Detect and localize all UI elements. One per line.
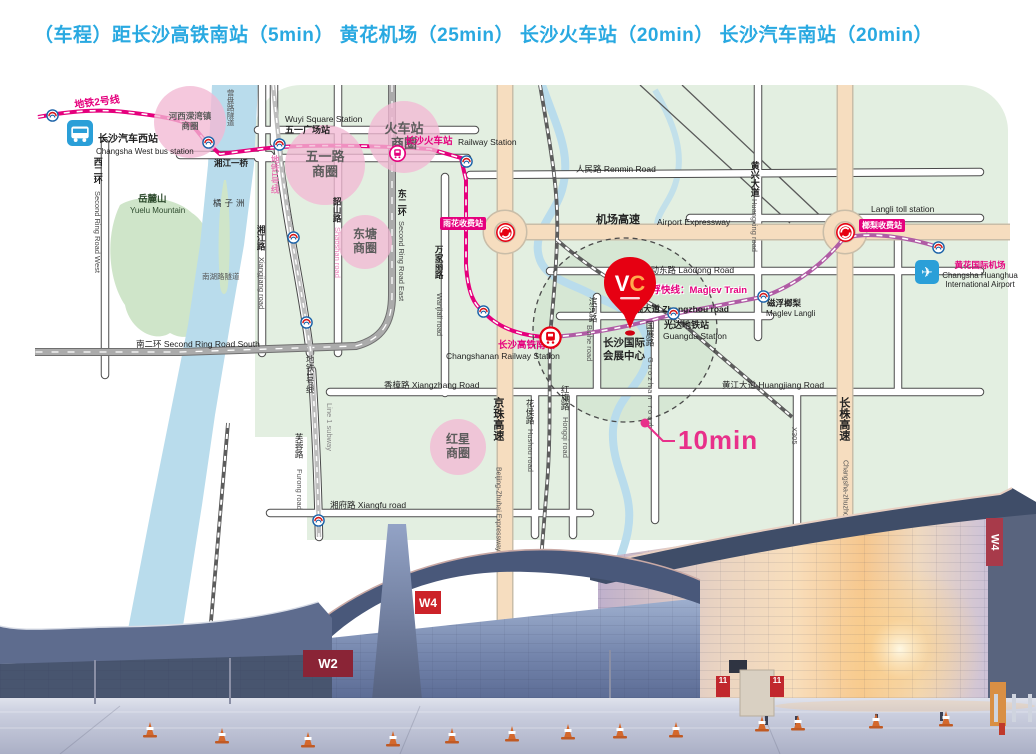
map-label: 会展中心 bbox=[603, 351, 645, 362]
map-label: 五一广场站 bbox=[285, 126, 330, 136]
map-label: 南湖路隧道 bbox=[202, 273, 240, 281]
map-label: 黄兴大道 bbox=[749, 161, 759, 197]
map-label: 西二环 bbox=[92, 157, 102, 184]
map-label: Binhe road bbox=[585, 325, 593, 361]
metro-station-icon bbox=[273, 138, 286, 151]
hsr-station-icon bbox=[538, 325, 563, 350]
map-label: 湘江一桥 bbox=[214, 159, 248, 168]
metro-station-icon bbox=[757, 290, 770, 303]
map-label: 红旗路 bbox=[560, 385, 569, 411]
map-label: Second Ring Road East bbox=[397, 221, 405, 301]
map-label: Guangda Station bbox=[663, 332, 727, 341]
toll-station-icon bbox=[495, 222, 516, 243]
hall-sign-w4-right: W4 bbox=[986, 518, 1003, 566]
map-label: 橘子洲 bbox=[213, 199, 248, 208]
business-circle: 五一路商圈 bbox=[285, 125, 365, 205]
map-label: 光达地铁站 bbox=[664, 321, 709, 331]
map-label: 岳麓山 bbox=[138, 195, 167, 205]
map-label: Yuelu Mountain bbox=[130, 207, 185, 216]
map-label: 机场高速 bbox=[596, 215, 640, 227]
map-label: 长株高速 bbox=[837, 397, 849, 441]
map-label: Maglev Langli bbox=[766, 310, 815, 319]
map-label: Second Ring Road West bbox=[93, 191, 101, 273]
toll-station-icon bbox=[835, 222, 856, 243]
metro-station-icon bbox=[202, 136, 215, 149]
hall-sign-w4-left: W4 bbox=[415, 591, 441, 614]
map-label: X305 bbox=[790, 427, 798, 445]
map-label: 长沙火车站 bbox=[405, 137, 453, 147]
map-label: Huangxing road bbox=[750, 199, 758, 252]
airport-icon: ✈ bbox=[915, 260, 939, 284]
map-label: 长沙国际 bbox=[603, 338, 645, 349]
ten-min-label: 10min bbox=[678, 425, 758, 456]
metro-station-icon bbox=[287, 231, 300, 244]
map-label: 南二环 Second Ring Road South bbox=[136, 340, 260, 349]
metro-station-icon bbox=[477, 305, 490, 318]
bus-station-icon bbox=[67, 120, 93, 146]
pin-monogram: VC bbox=[615, 271, 646, 296]
svg-text:✈: ✈ bbox=[921, 264, 933, 280]
map-label: 地铁2号线 bbox=[74, 95, 121, 111]
map-label: Airport Expressway bbox=[657, 218, 730, 227]
map-label: Changsha West bus station bbox=[96, 148, 194, 157]
map-label: 韶山路 bbox=[332, 197, 341, 223]
metro-station-icon bbox=[667, 307, 680, 320]
map-label: Line 1 subway bbox=[325, 403, 333, 451]
business-circle: 东塘商圈 bbox=[338, 215, 392, 269]
map-label: 黄花国际机场 bbox=[954, 261, 1005, 270]
map-label: Xiangjiang road bbox=[257, 257, 265, 309]
map-label: Hongqi road bbox=[561, 417, 569, 458]
map-label: 人民路 Renmin Road bbox=[576, 165, 656, 174]
map-label: 黄江大道 Huangjiang Road bbox=[722, 381, 824, 390]
metro-station-icon bbox=[460, 155, 473, 168]
metro-station-icon bbox=[300, 316, 313, 329]
map-label: 东二环 bbox=[396, 189, 406, 216]
metro-station-icon bbox=[46, 109, 59, 122]
map-label: Shaoshan road bbox=[333, 227, 341, 278]
map-label: 地铁1号线 bbox=[305, 355, 314, 394]
map-label: 地铁1号线 bbox=[270, 155, 279, 194]
map-label: Railway Station bbox=[458, 138, 517, 147]
gate-sign-11-left: 11 bbox=[716, 676, 730, 697]
map-label: 湘江路 bbox=[256, 225, 265, 251]
map-label: 万家丽路 bbox=[434, 245, 443, 279]
map-label: 花侯路 bbox=[525, 399, 534, 425]
page-title: （车程）距长沙高铁南站（5min） 黄花机场（25min） 长沙火车站（20mi… bbox=[34, 20, 933, 47]
map-label: 香樟路 Xiangzhang Road bbox=[384, 381, 479, 390]
metro-station-icon bbox=[932, 241, 945, 254]
map-label: Changshanan Railway Station bbox=[446, 352, 560, 361]
map-label: Langli toll station bbox=[871, 205, 934, 214]
gate-sign-11-right: 11 bbox=[770, 676, 784, 697]
map-label: Wuyi Square Station bbox=[285, 115, 362, 124]
map-label: 磁浮榔梨 bbox=[767, 299, 801, 308]
convention-center-photo bbox=[0, 454, 1036, 754]
map-label: 营盘路隧道 bbox=[226, 89, 234, 127]
map-label: International Airport bbox=[945, 281, 1014, 290]
toll-station-chip: 榔梨收费站 bbox=[859, 219, 905, 232]
hall-sign-w2: W2 bbox=[303, 650, 353, 677]
railway-station-icon bbox=[388, 144, 407, 163]
map-label: 滨河路 bbox=[588, 297, 597, 323]
map-label: 长沙汽车西站 bbox=[98, 135, 158, 146]
toll-station-chip: 雨花收费站 bbox=[440, 217, 486, 230]
map-label: Wanjiali road bbox=[435, 293, 443, 336]
vc-location-pin: VC bbox=[600, 255, 660, 337]
map-label: 京珠高速 bbox=[491, 397, 503, 441]
